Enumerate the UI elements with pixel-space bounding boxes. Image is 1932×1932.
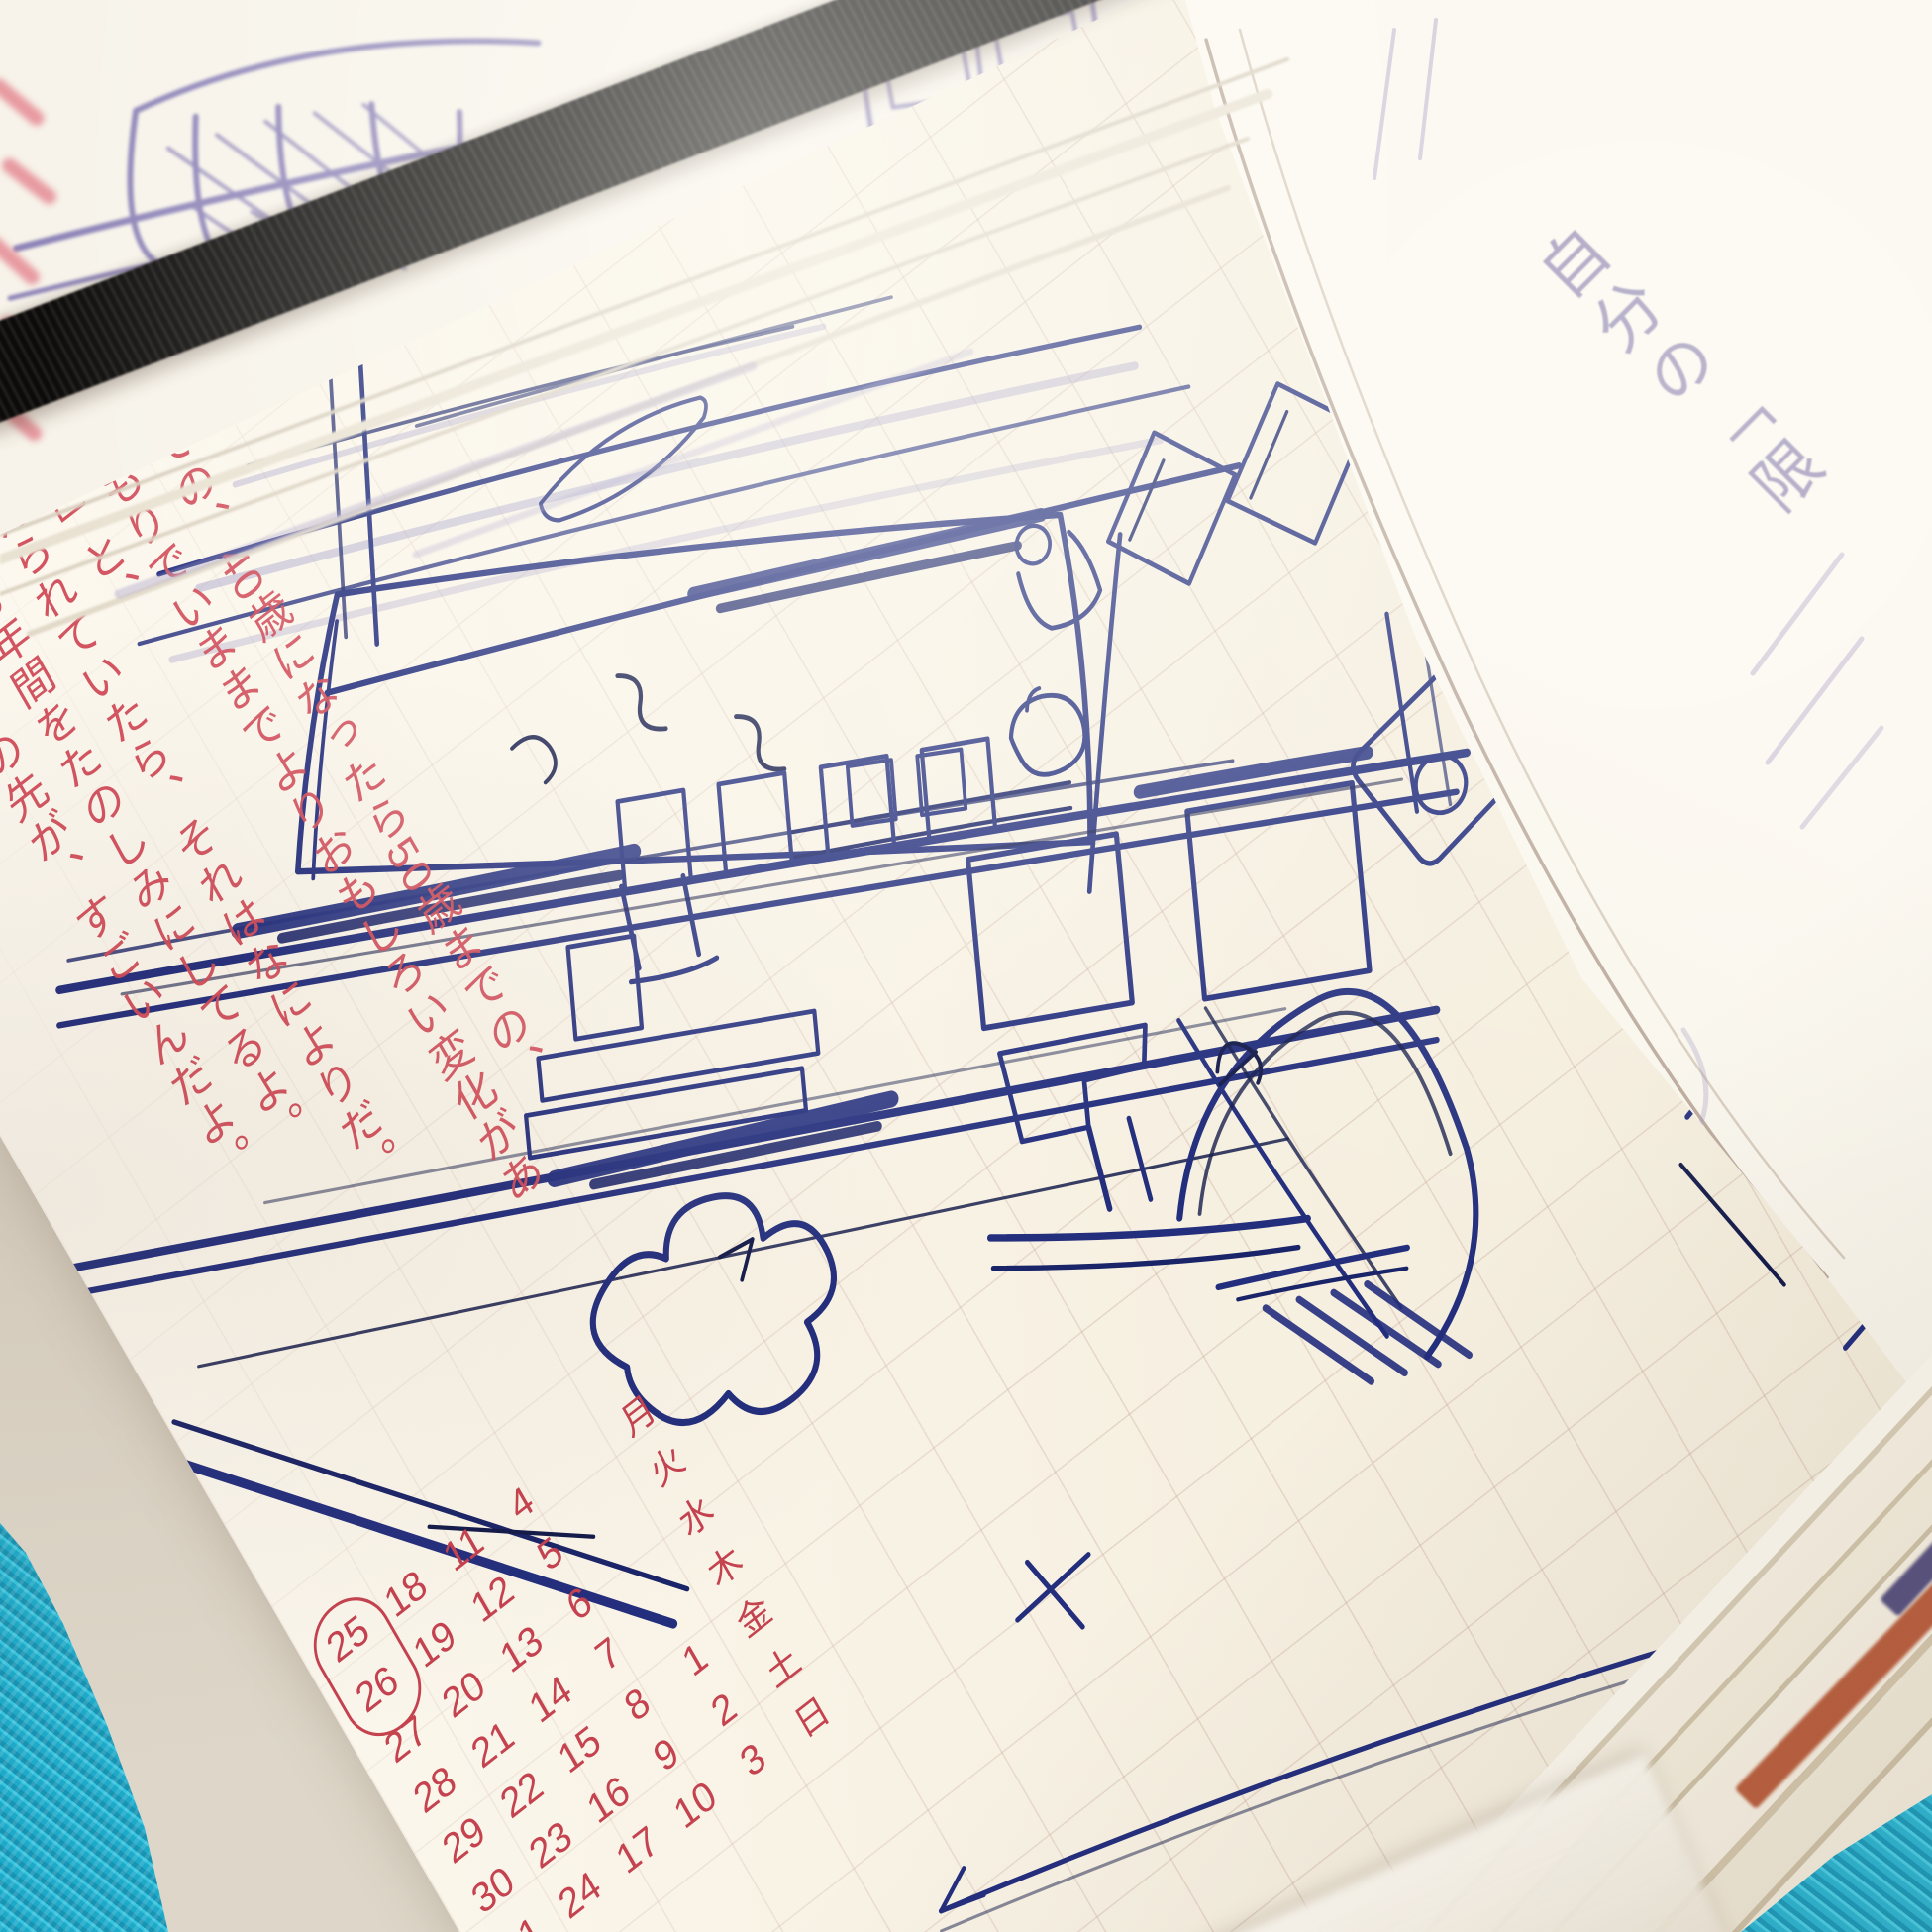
notebook-photo: までの、40歳になったら50歳までの、つもりでいままでよりおもしろい変化がある」… [0,0,1932,1932]
